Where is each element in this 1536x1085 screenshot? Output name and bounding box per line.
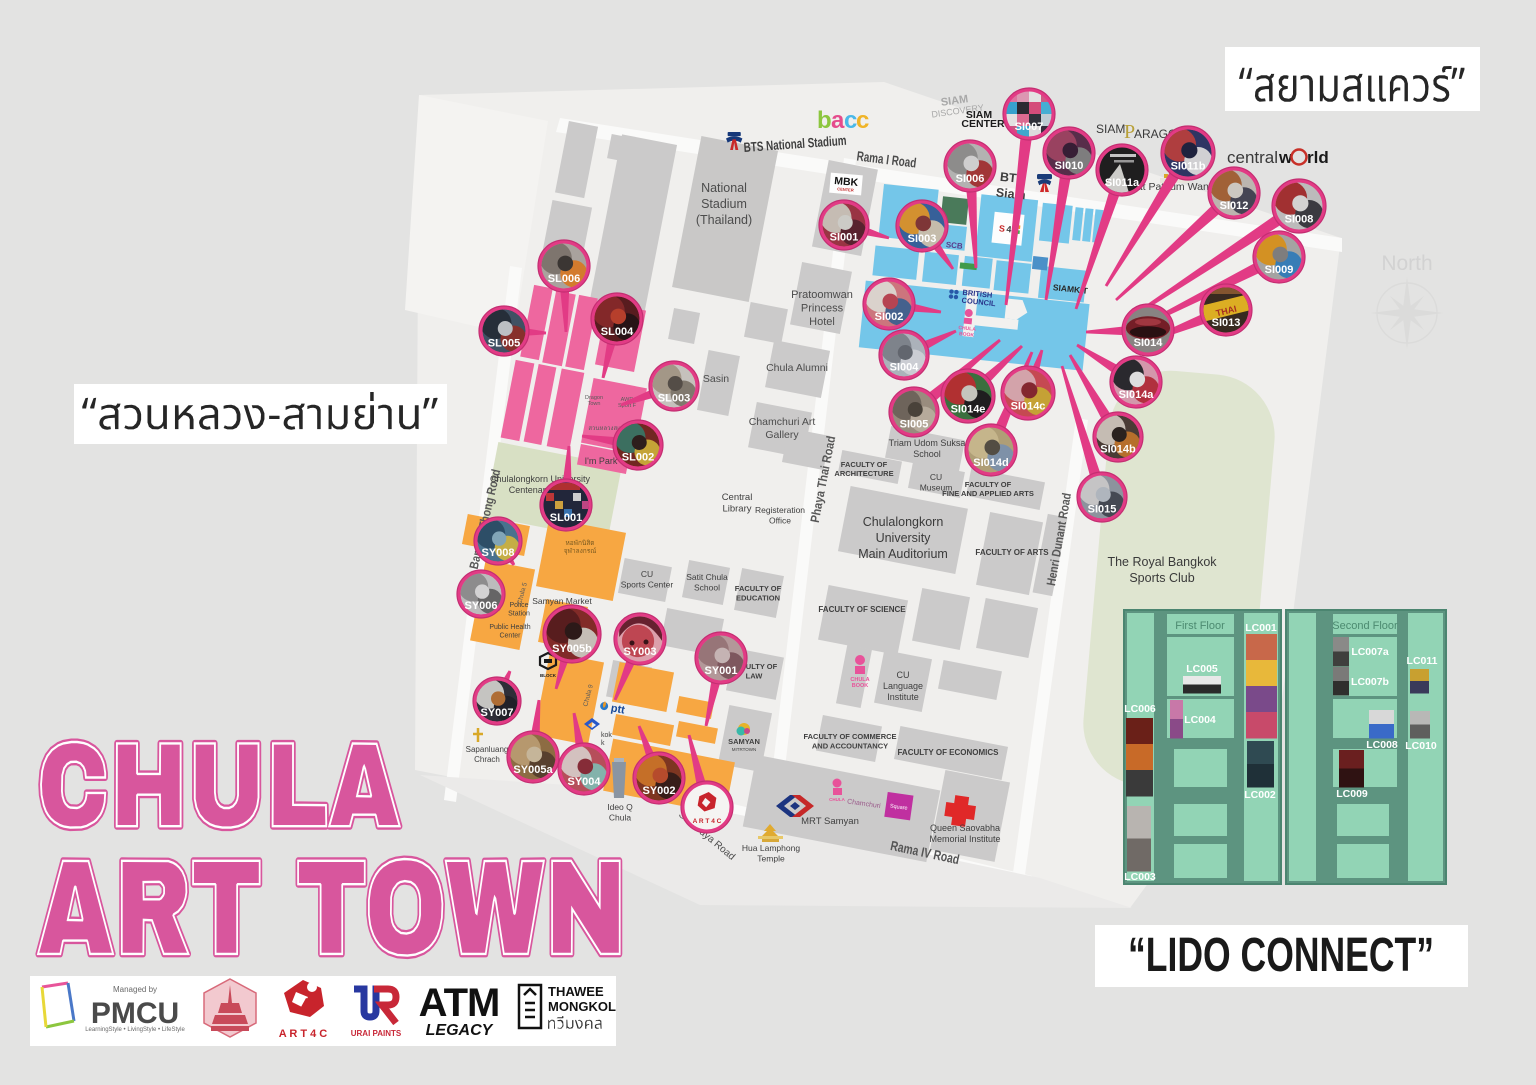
svg-text:University: University [876, 531, 932, 545]
svg-text:SY005b: SY005b [552, 643, 592, 655]
svg-text:c: c [856, 107, 869, 134]
svg-text:SL006: SL006 [548, 273, 580, 285]
svg-text:The Royal Bangkok: The Royal Bangkok [1107, 555, 1217, 569]
svg-text:Institute: Institute [887, 692, 919, 702]
svg-text:FACULTY OF: FACULTY OF [841, 460, 888, 469]
svg-text:CU: CU [641, 569, 653, 579]
svg-text:First Floor: First Floor [1175, 620, 1225, 632]
svg-text:Chamchuri Art: Chamchuri Art [749, 416, 816, 428]
svg-text:Center: Center [499, 633, 521, 640]
svg-text:BOOK: BOOK [852, 683, 869, 689]
svg-text:ATM: ATM [419, 981, 500, 1025]
svg-text:BLOCK: BLOCK [540, 673, 557, 678]
svg-text:SI002: SI002 [875, 311, 904, 323]
svg-text:Hotel: Hotel [809, 316, 835, 328]
svg-text:A R T 4 C: A R T 4 C [279, 1028, 328, 1040]
svg-text:SI012: SI012 [1220, 200, 1249, 212]
svg-text:central: central [1227, 148, 1278, 167]
svg-text:SI011b: SI011b [1171, 161, 1206, 173]
svg-text:LC005: LC005 [1186, 663, 1218, 675]
svg-text:CU: CU [897, 670, 910, 680]
svg-text:Chula Alumni: Chula Alumni [766, 362, 828, 374]
svg-text:Ideo Q: Ideo Q [607, 802, 633, 812]
svg-text:LC008: LC008 [1366, 739, 1398, 751]
svg-text:Sports Center: Sports Center [621, 580, 674, 590]
svg-text:SI014a: SI014a [1119, 389, 1155, 401]
svg-text:Sasin: Sasin [703, 373, 729, 385]
svg-text:Sapanluang: Sapanluang [466, 745, 509, 754]
svg-text:SCB: SCB [945, 240, 963, 251]
svg-text:SY006: SY006 [464, 600, 497, 612]
svg-text:A R T 4 C: A R T 4 C [693, 818, 722, 825]
svg-text:FACULTY OF: FACULTY OF [965, 480, 1012, 489]
svg-text:(Thailand): (Thailand) [696, 213, 752, 227]
svg-text:AND ACCOUNTANCY: AND ACCOUNTANCY [812, 742, 888, 751]
svg-text:SL003: SL003 [658, 393, 690, 405]
svg-text:School: School [694, 583, 720, 593]
svg-text:Chrach: Chrach [474, 755, 500, 764]
svg-text:MRT Samyan: MRT Samyan [801, 816, 859, 827]
svg-text:School: School [913, 449, 941, 459]
svg-text:PMCU: PMCU [91, 997, 179, 1030]
svg-text:SI014d: SI014d [973, 457, 1008, 469]
svg-text:SAMYAN: SAMYAN [728, 737, 760, 746]
svg-text:SI007: SI007 [1015, 121, 1044, 133]
svg-text:Chula: Chula [609, 813, 631, 823]
svg-text:THAWEE: THAWEE [548, 984, 604, 999]
svg-text:SI001: SI001 [830, 232, 859, 244]
svg-text:SY008: SY008 [481, 547, 514, 559]
svg-text:Town: Town [588, 401, 601, 407]
svg-text:LC001: LC001 [1245, 622, 1277, 634]
svg-text:Chulalongkorn: Chulalongkorn [863, 515, 944, 529]
svg-text:Gallery: Gallery [765, 429, 799, 441]
svg-text:LC010: LC010 [1405, 740, 1437, 752]
svg-text:LC006: LC006 [1124, 703, 1156, 715]
svg-text:SI004: SI004 [890, 362, 920, 374]
svg-text:Princess: Princess [801, 303, 844, 315]
svg-text:ptt: ptt [610, 702, 626, 716]
svg-text:LC009: LC009 [1336, 788, 1368, 800]
svg-text:k: k [601, 740, 605, 747]
svg-text:SI006: SI006 [956, 173, 985, 185]
svg-text:SI013: SI013 [1212, 317, 1241, 329]
svg-text:FACULTY OF SCIENCE: FACULTY OF SCIENCE [818, 605, 906, 614]
svg-text:MITRTOWN: MITRTOWN [732, 747, 757, 752]
svg-text:SI015: SI015 [1088, 504, 1117, 516]
svg-text:LC003: LC003 [1124, 871, 1156, 883]
svg-text:SI011a: SI011a [1105, 177, 1140, 189]
svg-text:LAW: LAW [746, 672, 764, 681]
svg-text:SL004: SL004 [601, 326, 634, 338]
svg-text:LEGACY: LEGACY [426, 1022, 494, 1039]
svg-text:SI014c: SI014c [1011, 401, 1046, 413]
svg-text:CU: CU [930, 472, 942, 482]
svg-text:I'm Park: I'm Park [585, 456, 618, 466]
svg-text:Triam Udom Suksa: Triam Udom Suksa [889, 438, 966, 448]
svg-text:rld: rld [1307, 148, 1329, 167]
svg-text:LearningStyle • LivingStyle •: LearningStyle • LivingStyle • LifeStyle [85, 1027, 185, 1033]
svg-text:Hua Lamphong: Hua Lamphong [742, 843, 800, 853]
svg-text:SY003: SY003 [623, 646, 656, 658]
svg-text:SI009: SI009 [1265, 264, 1294, 276]
svg-text:SI014: SI014 [1134, 337, 1164, 349]
svg-text:MONGKOL: MONGKOL [548, 999, 616, 1014]
svg-text:EDUCATION: EDUCATION [736, 594, 780, 603]
svg-text:SI010: SI010 [1055, 160, 1084, 172]
svg-text:Station: Station [508, 611, 530, 618]
svg-text:SY002: SY002 [642, 785, 675, 797]
svg-text:หอพักนิสิต: หอพักนิสิต [565, 539, 594, 547]
svg-text:FACULTY OF: FACULTY OF [735, 584, 782, 593]
svg-text:Queen Saovabha: Queen Saovabha [930, 823, 1000, 833]
svg-text:FACULTY OF COMMERCE: FACULTY OF COMMERCE [803, 732, 896, 741]
svg-text:CHULA: CHULA [829, 797, 845, 802]
svg-text:LC007a: LC007a [1351, 646, 1389, 658]
svg-text:SIAM: SIAM [1096, 122, 1125, 136]
svg-text:Pratoomwan: Pratoomwan [791, 289, 853, 301]
svg-text:FINE AND APPLIED ARTS: FINE AND APPLIED ARTS [942, 489, 1034, 498]
svg-text:FACULTY OF ECONOMICS: FACULTY OF ECONOMICS [897, 748, 999, 757]
svg-text:LC011: LC011 [1407, 655, 1438, 667]
svg-text:ARCHITECTURE: ARCHITECTURE [834, 469, 893, 478]
svg-text:National: National [701, 181, 747, 195]
svg-text:SI014b: SI014b [1100, 444, 1136, 456]
svg-text:SI008: SI008 [1285, 214, 1314, 226]
svg-text:b: b [817, 107, 832, 134]
svg-text:SY001: SY001 [704, 665, 737, 677]
svg-text:URAI PAINTS: URAI PAINTS [351, 1029, 402, 1038]
svg-text:Office: Office [769, 516, 791, 526]
svg-text:Temple: Temple [757, 854, 785, 864]
svg-text:SI005: SI005 [900, 419, 929, 431]
svg-text:Library: Library [722, 504, 751, 515]
svg-text:“LIDO CONNECT”: “LIDO CONNECT” [1128, 929, 1434, 982]
svg-text:a: a [831, 107, 845, 134]
svg-text:CENTER: CENTER [961, 118, 1005, 130]
svg-text:Sports Club: Sports Club [1129, 571, 1194, 585]
svg-text:SI003: SI003 [908, 233, 937, 245]
svg-text:SL002: SL002 [622, 452, 654, 464]
svg-text:SY007: SY007 [480, 707, 513, 719]
svg-text:LC007b: LC007b [1351, 676, 1389, 688]
svg-text:Memorial Institute: Memorial Institute [929, 834, 1000, 844]
svg-text:SY005a: SY005a [513, 764, 553, 776]
svg-text:SI014e: SI014e [951, 404, 986, 416]
svg-text:FACULTY OF ARTS: FACULTY OF ARTS [975, 548, 1049, 557]
svg-text:SY004: SY004 [567, 776, 601, 788]
svg-text:Samyan Market: Samyan Market [532, 596, 592, 606]
svg-text:Public Health: Public Health [489, 624, 530, 631]
svg-text:LC002: LC002 [1244, 789, 1276, 801]
svg-text:Stadium: Stadium [701, 197, 747, 211]
svg-text:kok: kok [601, 732, 612, 739]
svg-text:Central: Central [722, 492, 753, 503]
svg-text:North: North [1381, 252, 1432, 275]
svg-text:4: 4 [1006, 224, 1012, 234]
svg-text:Managed by: Managed by [113, 985, 157, 994]
svg-text:Satit Chula: Satit Chula [686, 572, 728, 582]
svg-text:S: S [998, 223, 1005, 234]
svg-text:Main Auditorium: Main Auditorium [858, 547, 948, 561]
svg-text:Registeration: Registeration [755, 505, 805, 515]
svg-text:LC004: LC004 [1184, 714, 1216, 726]
svg-text:Second Floor: Second Floor [1332, 620, 1398, 632]
svg-text:SL005: SL005 [488, 338, 520, 350]
svg-text:SL001: SL001 [550, 512, 582, 524]
svg-text:Language: Language [883, 681, 923, 691]
svg-text:จุฬาลงกรณ์: จุฬาลงกรณ์ [564, 547, 597, 555]
